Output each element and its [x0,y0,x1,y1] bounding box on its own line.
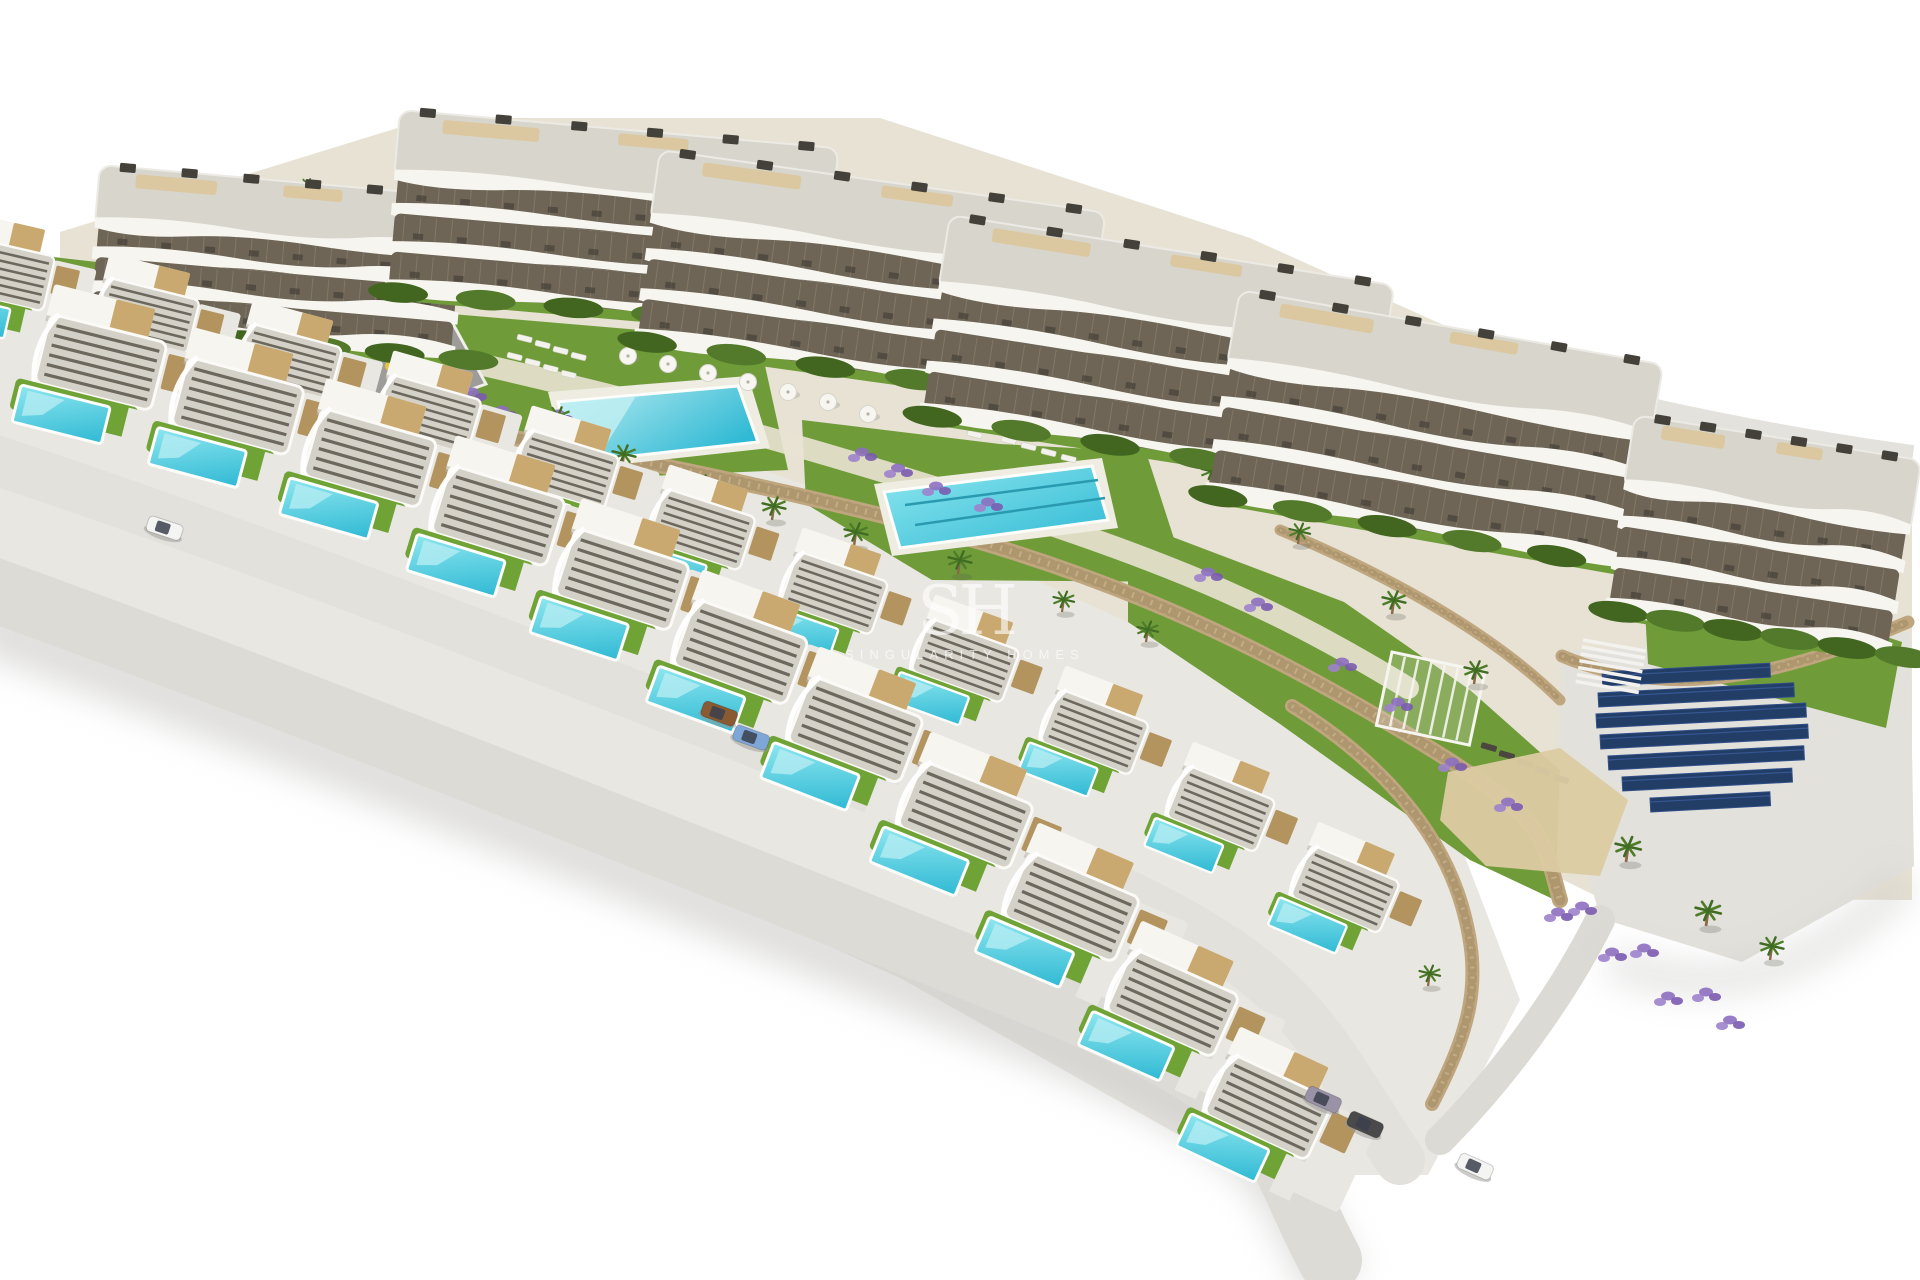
terrace-furniture [548,206,558,213]
car [1452,1151,1497,1186]
rooftop-ac-unit [647,128,664,138]
rooftop-ac-unit [495,114,512,124]
umbrella-pole [706,371,709,374]
umbrella-pole [746,380,749,383]
lavender-patch [1568,902,1597,917]
terrace-furniture [544,245,554,252]
terrace-furniture [591,210,601,217]
umbrella-pole [866,412,869,415]
terrace-furniture [504,203,514,210]
umbrella-pole [786,390,789,393]
development-aerial-render [0,0,1920,1280]
lavender-patch [1716,1016,1745,1031]
terrace-furniture [409,271,419,278]
rooftop-ac-unit [243,174,260,184]
terrace-furniture [205,246,215,253]
terrace-furniture [202,280,212,287]
terrace-furniture [333,292,343,299]
terrace-furniture [497,279,507,286]
terrace-furniture [413,233,423,240]
terrace-furniture [585,287,595,294]
terrace-furniture [588,249,598,256]
terrace-furniture [629,291,639,298]
terrace-furniture [292,254,302,261]
lavender-patch [1544,908,1573,923]
terrace-furniture [416,195,426,202]
terrace-furniture [453,275,463,282]
rooftop-ac-unit [798,141,815,151]
terrace-furniture [632,252,642,259]
terrace-furniture [289,288,299,295]
rooftop-ac-unit [367,184,384,194]
terrace-furniture [541,283,551,290]
rooftop-ac-unit [119,163,136,173]
terrace-furniture [117,239,127,246]
umbrella-pole [626,354,629,357]
terrace-furniture [500,241,510,248]
terrace-furniture [249,250,259,257]
render-stage: SH SINGULARITY HOMES [0,0,1920,1280]
rooftop-ac-unit [571,121,588,131]
terrace-furniture [330,326,340,333]
terrace-furniture [336,258,346,265]
rooftop-ac-unit [722,134,739,144]
terrace-furniture [460,199,470,206]
rooftop-ac-unit [419,108,436,118]
terrace-furniture [161,242,171,249]
umbrella-pole [826,400,829,403]
terrace-furniture [246,284,256,291]
rooftop-ac-unit [181,168,198,178]
terrace-furniture [635,214,645,221]
umbrella-pole [666,362,669,365]
rooftop-ac-unit [305,179,322,189]
terrace-furniture [457,237,467,244]
